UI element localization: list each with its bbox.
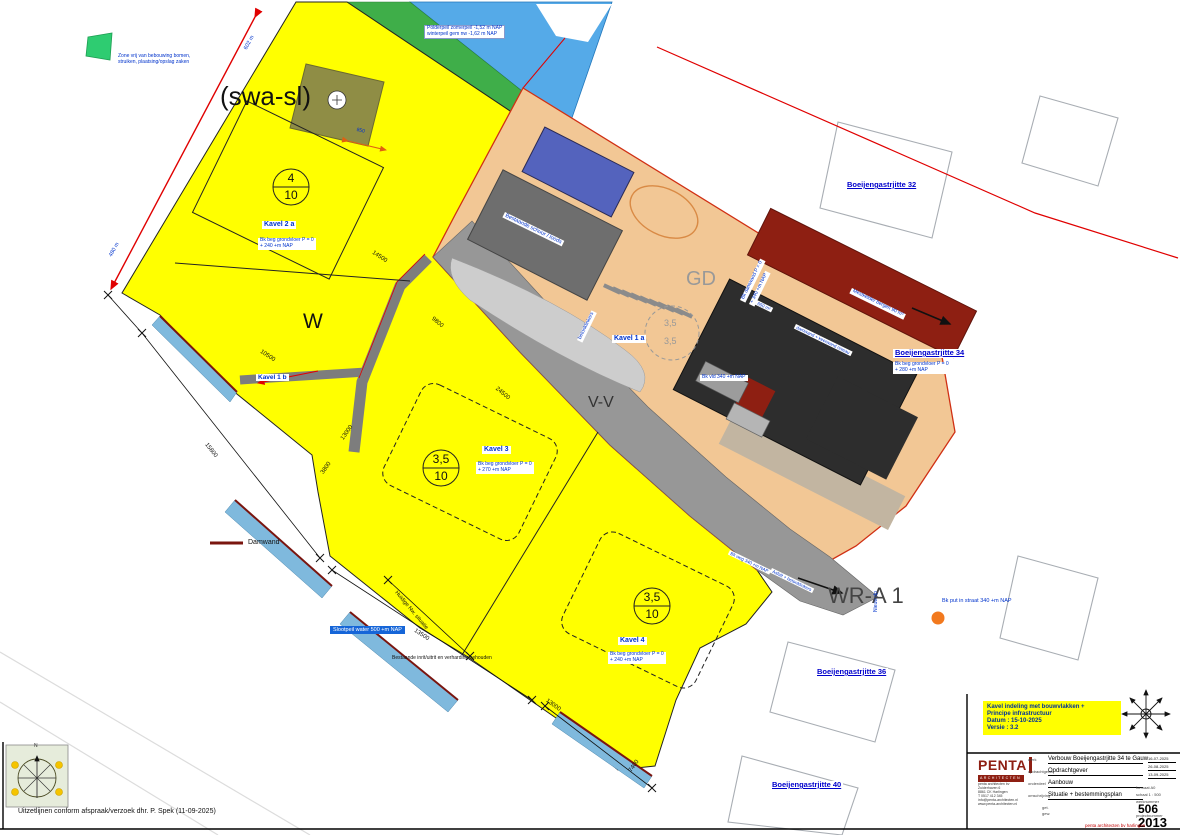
zoning-label-w: W — [303, 310, 323, 334]
manhole-dot — [932, 612, 945, 625]
field-label-werk: werk — [1028, 758, 1036, 763]
legend-damwand-label: Damwand — [248, 539, 280, 547]
label-kavel-4: Kavel 4 — [618, 637, 647, 645]
label-kavel-3: Kavel 3 — [482, 446, 511, 454]
k2a-ratio-top: 4 — [273, 172, 309, 186]
titleblock-note-line4: Versie : 3.2 — [987, 725, 1117, 732]
neighbour-building-e — [1000, 556, 1098, 660]
label-kavel-2a: Kavel 2 a — [262, 221, 296, 229]
k3-ratio-bottom: 10 — [423, 470, 459, 484]
zoning-label-wr-a1: WR-A 1 — [828, 583, 904, 608]
inrit-note: Bestaande inrit/uitrit en verharding beh… — [392, 656, 492, 662]
penta-logo-text: PENTA — [978, 757, 1032, 773]
field-label-omschrijving: omschrijving — [1028, 794, 1050, 799]
sloot-level-note: Slootpeil water 500 +m NAP — [330, 626, 405, 634]
k4-ratio-bottom: 10 — [634, 608, 670, 622]
k4-ratio-top: 3,5 — [634, 591, 670, 605]
k2a-floor-note-line2: + 240 +m NAP — [260, 244, 314, 250]
label-kavel-1b: Kavel 1 b — [256, 374, 289, 381]
penta-logo: PENTA ARCHITECTEN — [978, 757, 1026, 782]
revision-date-3: 13-09-2025 — [1148, 773, 1176, 779]
penta-address: penta architecten bv Zuiderhaven 6 8861 … — [978, 782, 1028, 806]
k2a-floor-note: Bk beg grondvloer P = 0 + 240 +m NAP — [258, 238, 316, 250]
k2a-ratio-bottom: 10 — [273, 189, 309, 203]
gewijzigd-label: gew. — [1042, 812, 1050, 817]
format-label: formaat A0 — [1136, 786, 1155, 791]
neighbour-building-ne — [1022, 96, 1118, 186]
getekend-label: get. — [1042, 806, 1049, 811]
green-zone-note-line2: struiken, plaatsing/opslag zaken — [118, 60, 190, 66]
titleblock-note-box: Kavel indeling met bouwvlakken + Princip… — [983, 701, 1121, 735]
field-value-opdrachtgever: Opdrachtgever — [1048, 768, 1143, 776]
street-label-32: Boeijengastrjitte 32 — [845, 181, 918, 190]
zoning-label-vv: V-V — [588, 394, 614, 412]
label-kavel-1a: Kavel 1 a — [612, 335, 646, 343]
drawing-sheet: (swa-sl) W V-V GD WR-A 1 4 10 3,5 10 3,5… — [0, 0, 1180, 835]
field-label-onderdeel: onderdeel — [1028, 782, 1046, 787]
zoning-label-gd: GD — [686, 268, 716, 291]
street34-note-line2: + 280 +m NAP — [895, 368, 949, 374]
zoning-label-swa-sl: (swa-sl) — [220, 82, 311, 112]
compass-n-label: N — [34, 744, 38, 750]
k1a-ratio-a: 3,5 — [664, 318, 677, 328]
polder-note-line2: winterpeil gem nw -1,62 m NAP — [427, 32, 502, 38]
k3-floor-note: Bk beg grondvloer P = 0 + 270 +m NAP — [476, 462, 534, 474]
revision-date-1: 16-07-2025 — [1148, 757, 1176, 763]
sun-diagram — [6, 745, 68, 807]
titleblock-note-line3: Datum : 15-10-2025 — [987, 718, 1117, 725]
field-value-onderdeel: Aanbouw — [1048, 780, 1143, 788]
titleblock-note-line1: Kavel indeling met bouwvlakken + — [987, 704, 1117, 711]
put-note: Bk put in straat 340 +m NAP — [942, 598, 1012, 604]
street34-floor-note: Bk beg grondvloer P = 0 + 280 +m NAP — [893, 362, 951, 374]
penta-address-line6: www.penta-architecten.nl — [978, 802, 1028, 806]
k3-floor-note-line2: + 270 +m NAP — [478, 468, 532, 474]
k1a-ratio-b: 3,5 — [664, 336, 677, 346]
green-zone-note: Zone vrij van bebouwing bomen, struiken,… — [118, 54, 190, 66]
k4-floor-note: Bk beg grondvloer P = 0 + 240 +m NAP — [608, 652, 666, 664]
green-zone-marker — [86, 33, 112, 60]
scale-label: schaal 1 : 500 — [1136, 793, 1161, 798]
neighbour-building-40 — [728, 756, 858, 835]
titleblock-note-line2: Principe infrastructuur — [987, 711, 1117, 718]
titleblock-footer: penta architecten bv harlingen — [1085, 823, 1145, 828]
uitzetlijnen-note: Uitzetlijnen conform afspraak/verzoek dh… — [18, 808, 216, 816]
field-value-werk: Verbouw Boeijengastrjitte 34 te Gauw — [1048, 756, 1143, 764]
street-label-36: Boeijengastrjitte 36 — [815, 668, 888, 677]
neighbour-building-36 — [770, 642, 895, 742]
bk-vld-note: Bk vld 340 +m NAP — [700, 375, 748, 381]
street-label-40: Boeijengastrjitte 40 — [770, 781, 843, 790]
revision-date-2: 26-08-2025 — [1148, 765, 1176, 771]
k3-ratio-top: 3,5 — [423, 453, 459, 467]
field-value-omschrijving: Situatie + bestemmingsplan — [1048, 792, 1143, 800]
nieuw-dp-note: Nieuw dp — [874, 591, 880, 612]
penta-logo-subtext: ARCHITECTEN — [978, 775, 1024, 781]
street-label-34: Boeijengastrjitte 34 — [893, 349, 966, 358]
polder-level-note: Polderpeil zomerpeil -1,52 m NAP winterp… — [424, 25, 505, 39]
compass-rose — [1122, 690, 1170, 738]
k4-floor-note-line2: + 240 +m NAP — [610, 658, 664, 664]
